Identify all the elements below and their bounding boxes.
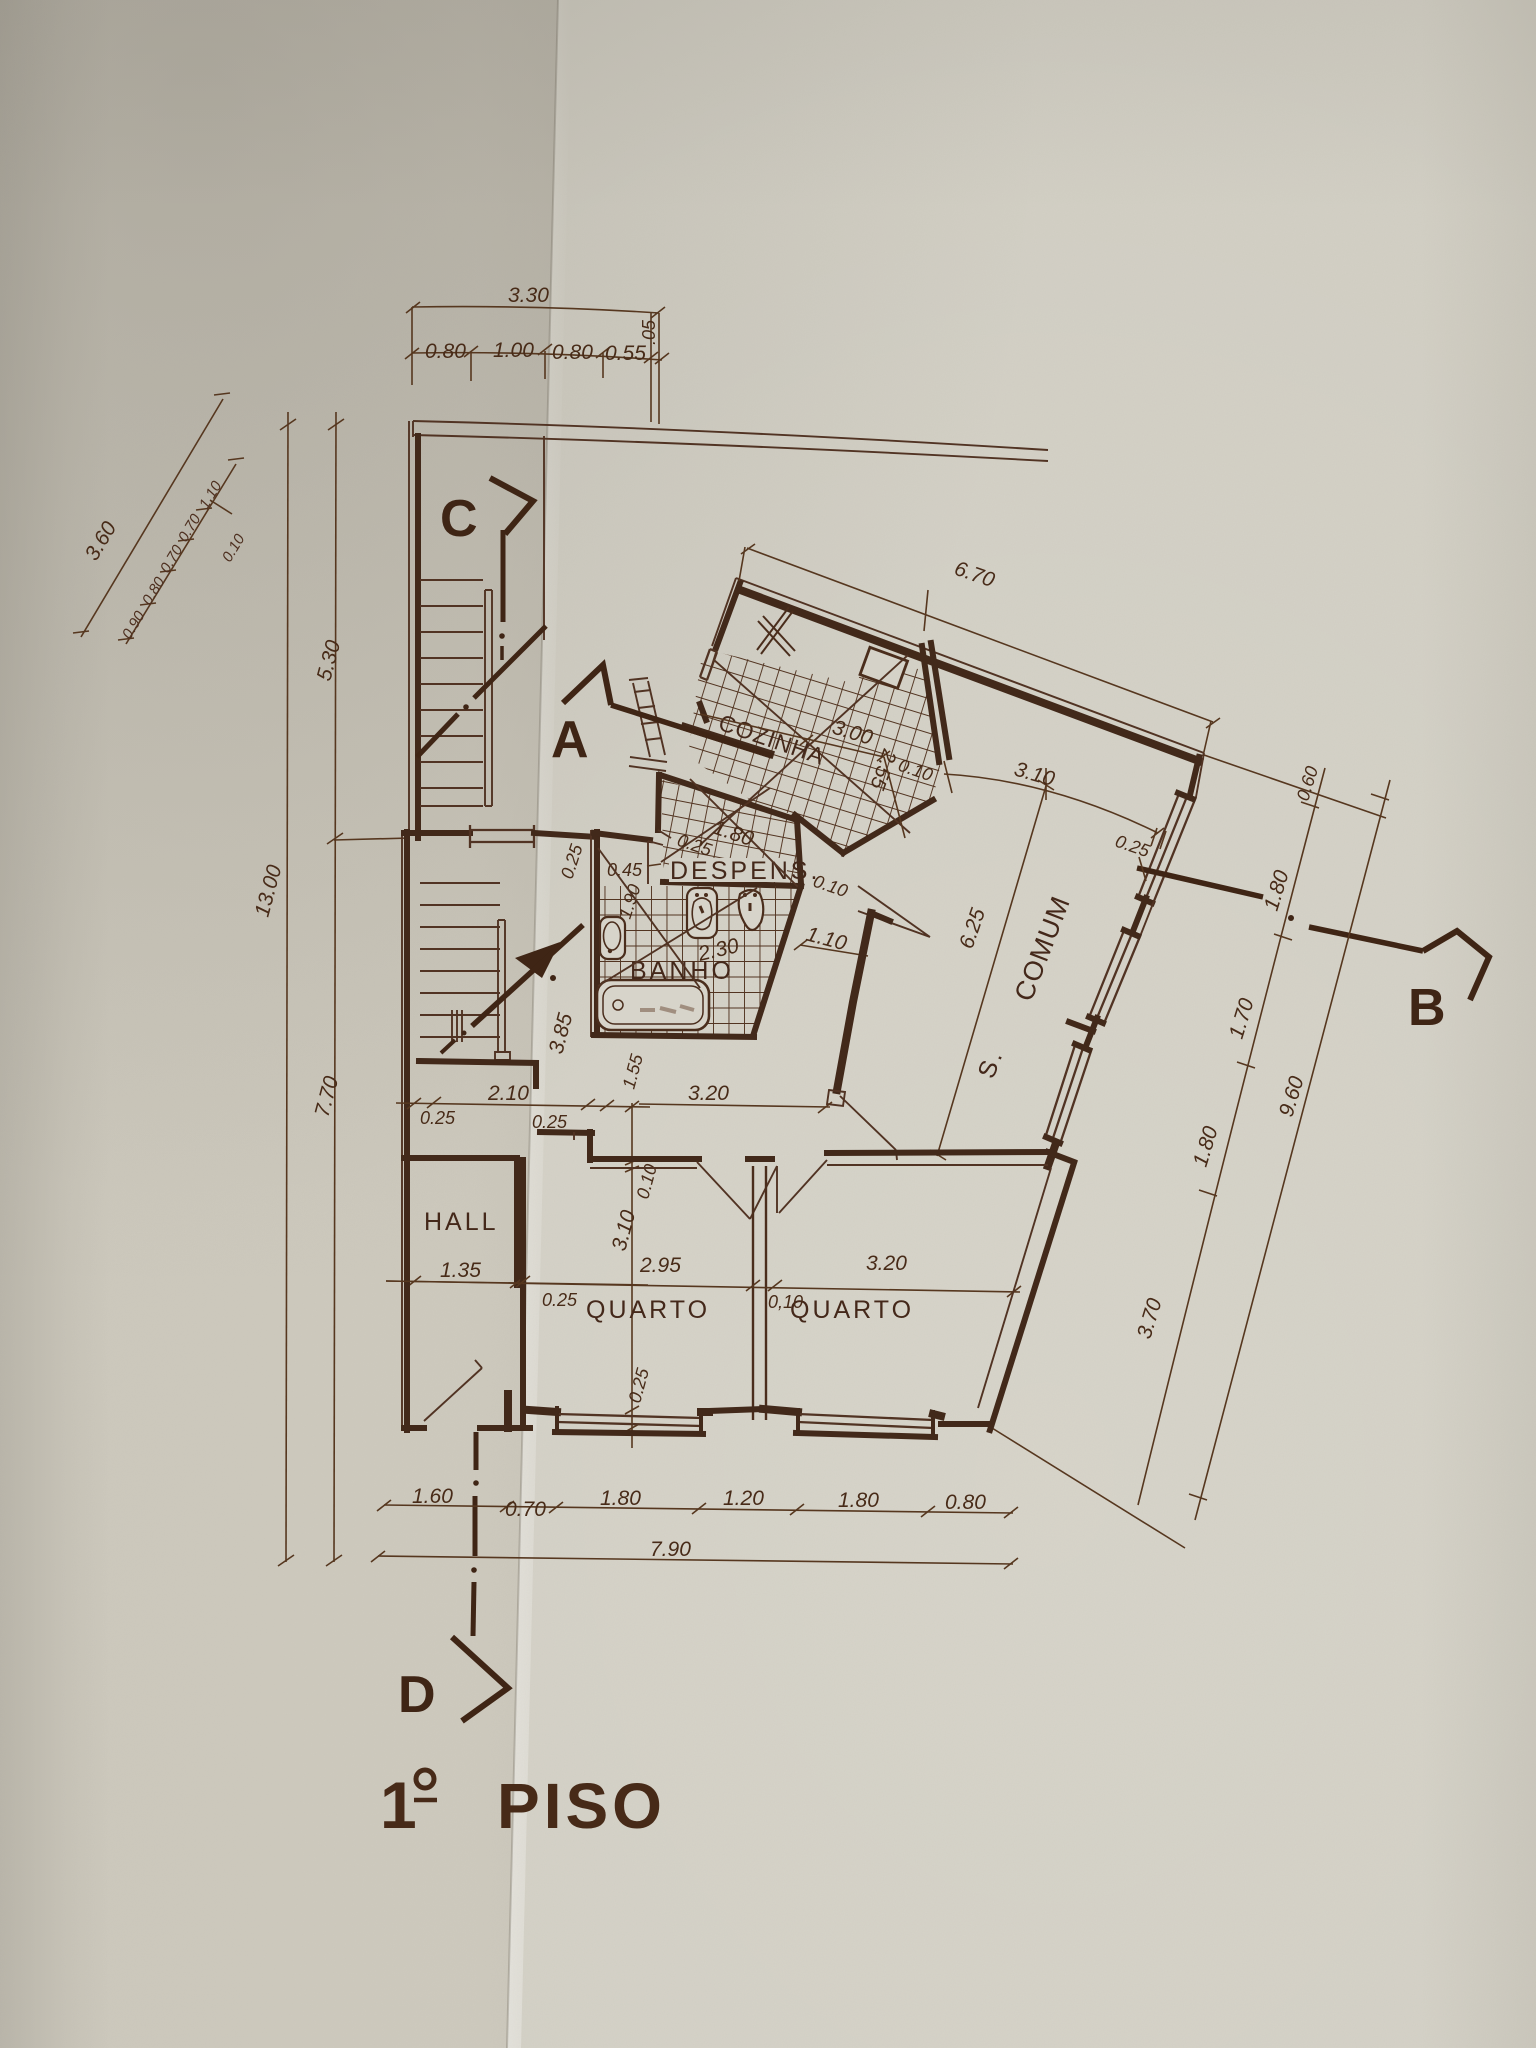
svg-text:PISO: PISO [497,1770,666,1842]
svg-text:3.30: 3.30 [508,284,549,307]
svg-text:2.10: 2.10 [487,1082,529,1105]
svg-text:A: A [551,711,589,769]
svg-text:B: B [1408,979,1446,1037]
svg-text:0.25: 0.25 [420,1108,456,1128]
svg-text:0,10: 0,10 [768,1292,803,1312]
svg-text:HALL: HALL [424,1208,499,1236]
svg-text:0.80: 0.80 [425,340,466,363]
svg-text:1.80: 1.80 [838,1489,879,1512]
svg-text:.05: .05 [639,319,659,345]
svg-text:D: D [398,1666,436,1724]
svg-text:DESPENS.: DESPENS. [670,857,820,885]
svg-text:1: 1 [380,1768,417,1842]
svg-text:1.00: 1.00 [493,339,534,362]
svg-text:0.70: 0.70 [505,1498,546,1521]
svg-text:0.80: 0.80 [945,1491,986,1514]
svg-text:2.95: 2.95 [639,1254,681,1277]
svg-text:1.20: 1.20 [723,1487,764,1510]
svg-text:1.60: 1.60 [412,1485,453,1508]
svg-text:0.25: 0.25 [542,1290,578,1310]
svg-text:0.45: 0.45 [607,860,643,880]
svg-text:1.80: 1.80 [600,1487,641,1510]
svg-text:C: C [440,490,478,548]
svg-text:0.80: 0.80 [552,341,593,364]
svg-text:3.20: 3.20 [688,1082,729,1105]
svg-text:QUARTO: QUARTO [586,1296,710,1324]
svg-text:3.20: 3.20 [866,1252,907,1275]
svg-text:7.90: 7.90 [650,1538,691,1561]
svg-text:1.35: 1.35 [440,1259,481,1282]
svg-text:QUARTO: QUARTO [790,1296,914,1324]
